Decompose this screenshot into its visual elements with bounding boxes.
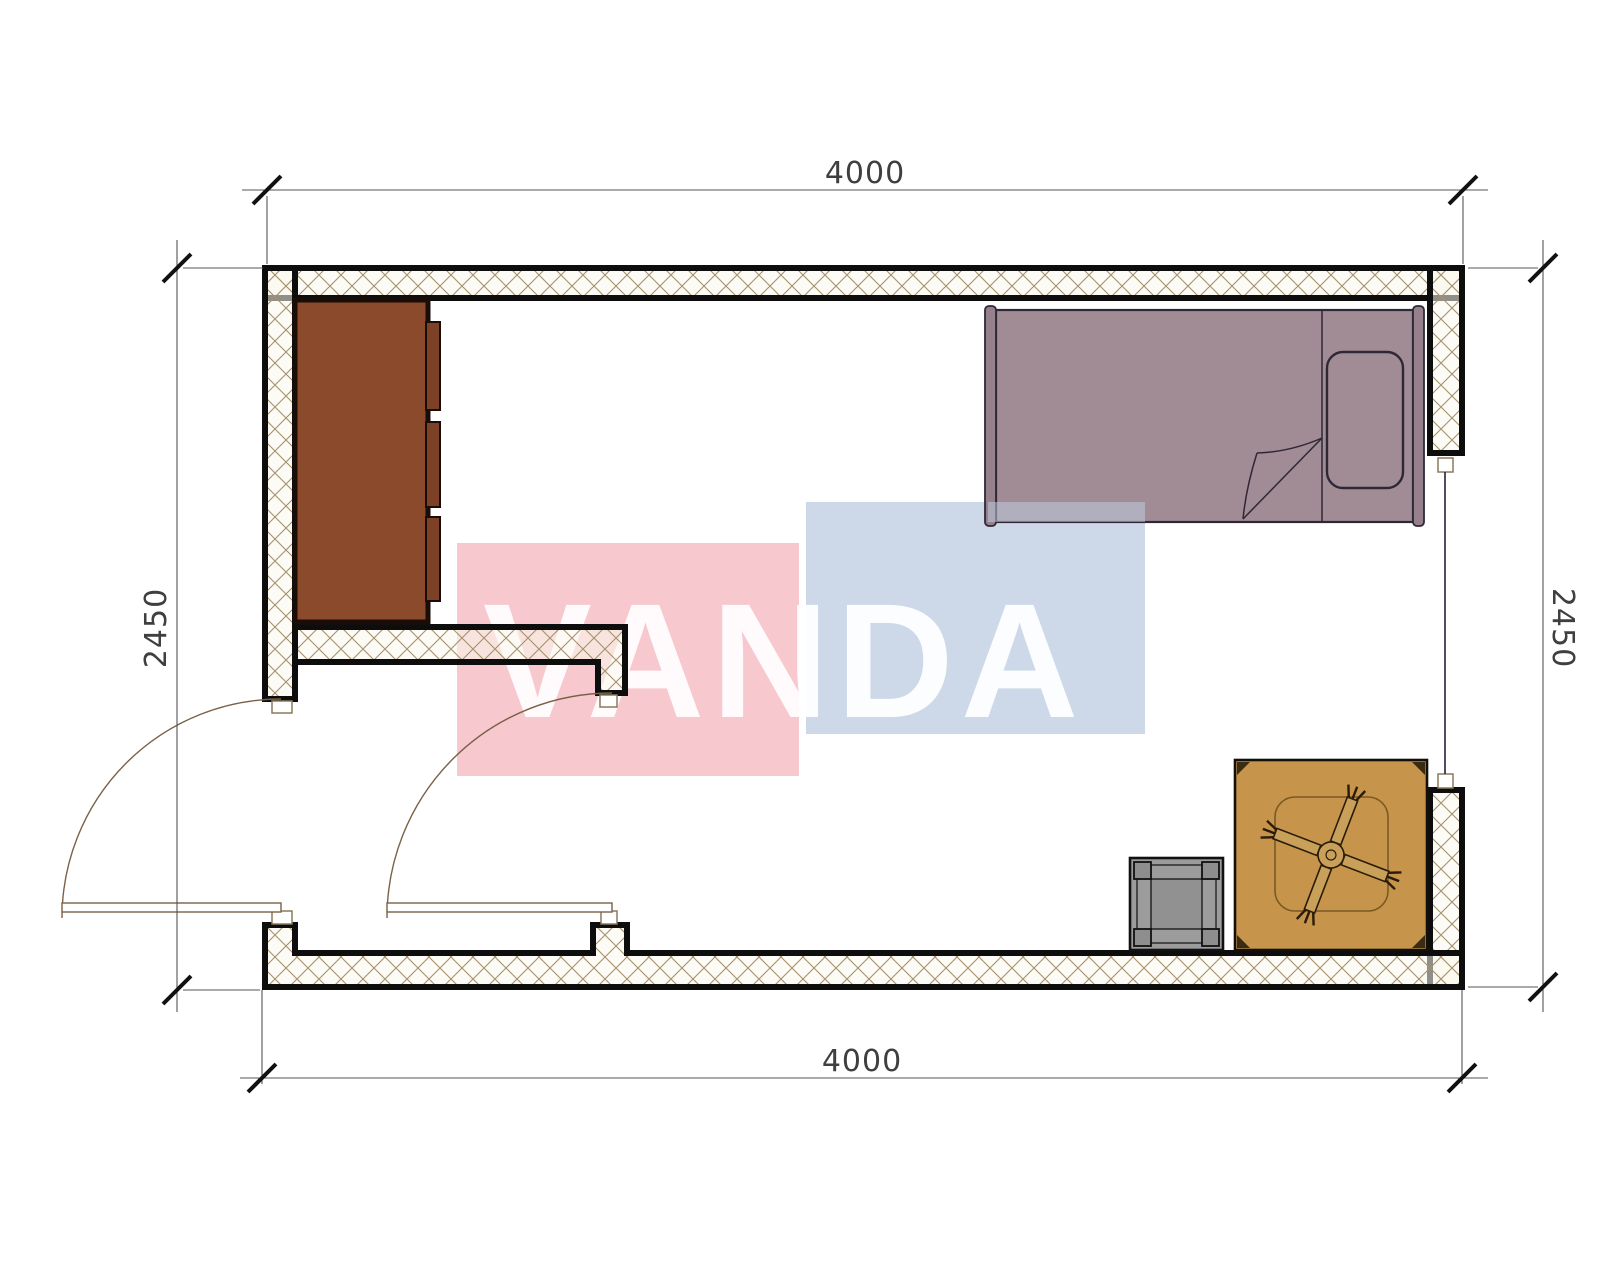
jamb-left-wall-end — [272, 701, 292, 713]
wall-right-upper — [1430, 268, 1462, 453]
bed-head-bar — [1413, 306, 1424, 526]
jamb-window-bottom — [1438, 774, 1453, 788]
floor-plan-canvas: VANDA — [0, 0, 1600, 1280]
wardrobe-drawer-2 — [426, 422, 440, 507]
dim-label-top: 4000 — [825, 156, 905, 191]
wardrobe-body — [295, 300, 428, 622]
wall-top — [265, 268, 1462, 298]
door-left-swing-arc — [62, 699, 281, 918]
pillow — [1327, 352, 1403, 488]
wardrobe-drawer-1 — [426, 322, 440, 410]
bed-foot-bar — [985, 306, 996, 526]
door-inner-leaf — [387, 903, 612, 912]
door-left-leaf — [62, 903, 281, 912]
wardrobe — [295, 300, 440, 622]
watermark-overlap-tint — [988, 502, 1145, 522]
stool — [1130, 858, 1223, 950]
jamb-partition-end — [600, 695, 617, 707]
floor-plan-page: VANDA — [0, 0, 1600, 1280]
dim-label-right: 2450 — [1545, 588, 1580, 668]
dim-label-bottom: 4000 — [822, 1044, 902, 1079]
bed — [985, 306, 1424, 526]
jamb-bottom-stub-2 — [601, 911, 617, 924]
door-left — [62, 699, 281, 918]
wardrobe-drawer-3 — [426, 517, 440, 601]
jamb-window-top — [1438, 458, 1453, 472]
stool-center — [1151, 879, 1202, 929]
wall-left — [265, 268, 295, 699]
jamb-bottom-stub-1 — [272, 911, 292, 924]
square-table — [1235, 760, 1427, 950]
dim-label-left: 2450 — [139, 588, 174, 668]
